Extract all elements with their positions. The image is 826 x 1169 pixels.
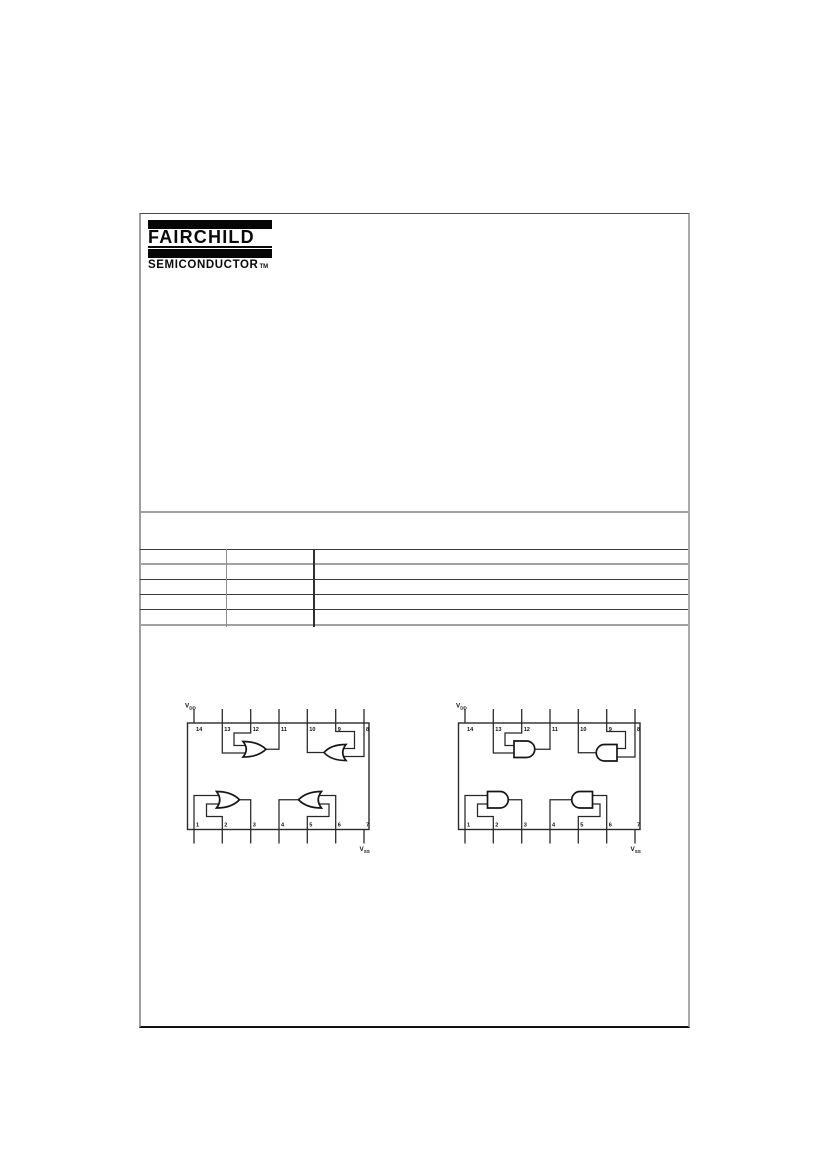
pin-number: 8 [366, 727, 369, 733]
pin-number: 14 [196, 727, 203, 733]
pin-number: 13 [495, 727, 501, 733]
table-column-divider-2 [313, 549, 315, 627]
or-gate-4 [299, 792, 322, 809]
table-row-border [140, 594, 688, 595]
pin-number: 11 [552, 727, 558, 733]
brand-name: FAIRCHILD [148, 229, 272, 248]
pin-number: 12 [524, 727, 530, 733]
pin-stubs-bottom [465, 830, 635, 844]
pin-number: 13 [224, 727, 230, 733]
pin-number: 5 [309, 823, 312, 829]
vss-label: VSS [360, 846, 370, 854]
logo-bar-middle [148, 249, 272, 258]
and-gate-4 [572, 792, 593, 809]
pin-number: 2 [224, 823, 227, 829]
pin-number: 4 [281, 823, 285, 829]
pin-stubs-top [194, 709, 364, 723]
table-header-separator [140, 563, 688, 566]
pin-number: 14 [467, 727, 474, 733]
datasheet-page: FAIRCHILD SEMICONDUCTORTM 14 13 12 11 10… [0, 0, 826, 1169]
table-row-border [140, 579, 688, 580]
or-gate-3 [217, 792, 240, 809]
page-border [139, 213, 690, 1028]
table-row-border [140, 609, 688, 610]
section-divider-rule [140, 511, 688, 514]
division-name: SEMICONDUCTORTM [148, 259, 272, 271]
vdd-label: VDD [456, 703, 468, 711]
pin-number: 6 [338, 823, 341, 829]
pin-number: 3 [524, 823, 527, 829]
pin-number: 1 [196, 823, 199, 829]
pin-number: 12 [253, 727, 259, 733]
pin-number: 7 [366, 823, 369, 829]
pin-number: 11 [281, 727, 287, 733]
pin-number: 6 [609, 823, 612, 829]
and-gate-2 [596, 745, 617, 762]
vdd-label: VDD [185, 703, 197, 711]
and-gate-3 [488, 792, 509, 809]
pin-number: 1 [467, 823, 470, 829]
pin-number: 9 [609, 727, 612, 733]
or-gate-2 [324, 745, 346, 761]
or-gate-1 [243, 742, 266, 758]
pin-number: 10 [580, 727, 586, 733]
dip-outline [188, 723, 370, 830]
pin-stubs-bottom [194, 830, 364, 844]
pin-stubs-top [465, 709, 635, 723]
trademark-symbol: TM [259, 264, 268, 270]
table-top-border [140, 549, 688, 551]
pin-number: 3 [253, 823, 256, 829]
brand-logo: FAIRCHILD SEMICONDUCTORTM [148, 220, 272, 271]
pin-number: 9 [338, 727, 341, 733]
pin-number: 7 [637, 823, 640, 829]
pin-number: 2 [495, 823, 498, 829]
connection-diagram-or: 14 13 12 11 10 9 8 1 2 3 4 5 6 7 VDD VSS [175, 695, 395, 860]
connection-diagram-and: 14 13 12 11 10 9 8 1 2 3 4 5 6 7 VDD VSS [446, 695, 666, 860]
and-gate-1 [514, 741, 535, 758]
dip-outline [459, 723, 641, 830]
division-name-text: SEMICONDUCTOR [148, 259, 258, 271]
pin-number: 5 [580, 823, 583, 829]
pin-number: 4 [552, 823, 556, 829]
pin-number: 8 [637, 727, 640, 733]
table-column-divider-1 [226, 549, 227, 627]
table-bottom-border [140, 624, 688, 626]
pin-number: 10 [309, 727, 315, 733]
vss-label: VSS [631, 846, 641, 854]
